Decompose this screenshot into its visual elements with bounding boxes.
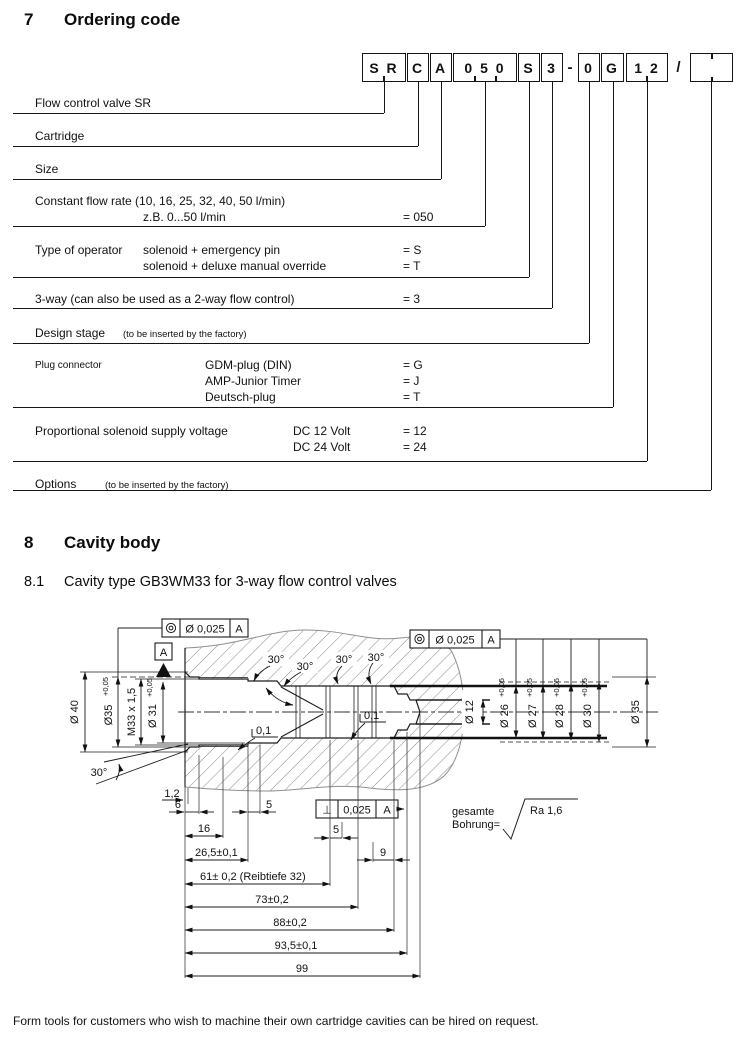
row-option: GDM-plug (DIN) [205, 358, 292, 372]
section8-number: 8 [24, 533, 33, 553]
section8-title: Cavity body [64, 533, 160, 553]
angle-label: 30° [268, 654, 285, 666]
fcf-right: Ø 0,025 A [410, 630, 647, 648]
row-value: = 24 [403, 440, 427, 454]
code-dash: - [563, 53, 577, 82]
row-label: Constant flow rate (10, 16, 25, 32, 40, … [35, 194, 285, 208]
box-tick [711, 54, 713, 59]
dim-99: 99 [296, 963, 308, 975]
code-box-050: 0 5 0 [453, 53, 517, 82]
section7-number: 7 [24, 10, 33, 30]
row-label: Options [35, 477, 76, 491]
row-value: = T [403, 259, 420, 273]
dim-16: 16 [198, 823, 210, 835]
code-box-a: A [430, 53, 452, 82]
dim-sup: +0,05 [552, 678, 561, 697]
dim-sup: +0,05 [525, 678, 534, 697]
dim-label-d12: Ø 12 [464, 700, 476, 724]
step-dim-label: 0,1 [256, 725, 271, 737]
box-tick [495, 76, 497, 82]
dim-label-d28: Ø 28 [554, 704, 566, 728]
entry-chamfer-angle: 30° [91, 744, 188, 784]
dim-sup: +0,05 [497, 678, 506, 697]
roughness-value: Ra 1,6 [530, 805, 562, 817]
row-option: solenoid + emergency pin [143, 243, 280, 257]
row-value: = G [403, 358, 423, 372]
section7-title: Ordering code [64, 10, 180, 30]
row-value: = J [403, 374, 419, 388]
dim-label-d31: Ø 31 [147, 704, 159, 728]
row-label: Cartridge [35, 129, 84, 143]
row-value: = 12 [403, 424, 427, 438]
fcf-datum: A [235, 624, 243, 636]
row-label: Type of operator [35, 243, 122, 257]
dim-label-d30: Ø 30 [582, 704, 594, 728]
fcf-tolerance: Ø 0,025 [185, 624, 224, 636]
dim-265: 26,5±0,1 [195, 847, 238, 859]
dim-label-d40: Ø 40 [69, 700, 81, 724]
dim-935: 93,5±0,1 [275, 940, 318, 952]
dim-73: 73±0,2 [255, 894, 289, 906]
datum-a-letter: A [160, 647, 168, 659]
code-slash: / [668, 53, 689, 82]
dim-9: 9 [380, 847, 386, 859]
section8-1-number: 8.1 [24, 574, 44, 590]
angle-label: 30° [297, 661, 314, 673]
row-value: = S [403, 243, 421, 257]
fcf-tolerance: Ø 0,025 [435, 635, 474, 647]
dim-sup: +0,05 [580, 678, 589, 697]
fcf-tolerance: 0,025 [343, 805, 371, 817]
dim-label-d35: Ø35 [103, 705, 115, 726]
code-box-c: C [407, 53, 429, 82]
row-label: Size [35, 162, 58, 176]
row-option: DC 24 Volt [293, 440, 350, 454]
surface-finish-note: gesamte Bohrung= Ra 1,6 [452, 799, 578, 839]
dim-label-m33: M33 x 1,5 [126, 688, 138, 736]
cavity-drawing: Ø 40 Ø35 +0,05 M33 x 1,5 Ø 31 +0,05 A Ø … [0, 600, 753, 1000]
dim-88: 88±0,2 [273, 917, 307, 929]
dim-label-d35r: Ø 35 [630, 700, 642, 724]
fcf-perpendicularity: ⊥ 0,025 A [316, 800, 404, 818]
dim-label-d26: Ø 26 [499, 704, 511, 728]
row-sub: z.B. 0...50 l/min [143, 210, 226, 224]
dim-label-d27: Ø 27 [527, 704, 539, 728]
row-label: Flow control valve SR [35, 96, 151, 110]
dim-6: 6 [175, 799, 181, 811]
code-box-0: 0 [578, 53, 600, 82]
dim-61: 61± 0,2 (Reibtiefe 32) [200, 871, 306, 883]
row-value: = 050 [403, 210, 433, 224]
row-label: Plug connector [35, 360, 102, 371]
dim-5b: 5 [333, 824, 339, 836]
code-box-s: S [518, 53, 540, 82]
right-dimensions: Ø 12 Ø 26 +0,05 Ø 27 +0,05 Ø 28 +0,05 Ø … [462, 639, 647, 747]
row-option: AMP-Junior Timer [205, 374, 301, 388]
box-tick [474, 76, 476, 82]
angle-label: 30° [336, 654, 353, 666]
fcf-datum: A [383, 805, 391, 817]
footer-note: Form tools for customers who wish to mac… [13, 1014, 539, 1028]
dim-sup: +0,05 [101, 677, 110, 696]
row-value: = T [403, 390, 420, 404]
section8-1-title: Cavity type GB3WM33 for 3-way flow contr… [64, 574, 397, 590]
code-box-g: G [601, 53, 624, 82]
dim-sup: +0,05 [145, 678, 154, 697]
note-line2: Bohrung= [452, 819, 500, 831]
row-label: 3-way (can also be used as a 2-way flow … [35, 292, 294, 306]
datum-triangle [156, 663, 171, 677]
row-note: (to be inserted by the factory) [123, 329, 247, 340]
row-option: solenoid + deluxe manual override [143, 259, 326, 273]
row-value: = 3 [403, 292, 420, 306]
datasheet-page: 7 Ordering code S R C A 0 5 0 S 3 - 0 G … [0, 0, 753, 1046]
note-line1: gesamte [452, 806, 494, 818]
code-box-3: 3 [541, 53, 563, 82]
fcf-left: Ø 0,025 A [118, 619, 248, 637]
row-option: DC 12 Volt [293, 424, 350, 438]
row-label: Proportional solenoid supply voltage [35, 424, 228, 438]
fcf-datum: A [487, 635, 495, 647]
step-dim-label: 0,1 [364, 710, 379, 722]
angle-label: 30° [91, 767, 108, 779]
angle-label: 30° [368, 652, 385, 664]
dim-5a: 5 [266, 799, 272, 811]
row-option: Deutsch-plug [205, 390, 276, 404]
row-label: Design stage [35, 326, 105, 340]
